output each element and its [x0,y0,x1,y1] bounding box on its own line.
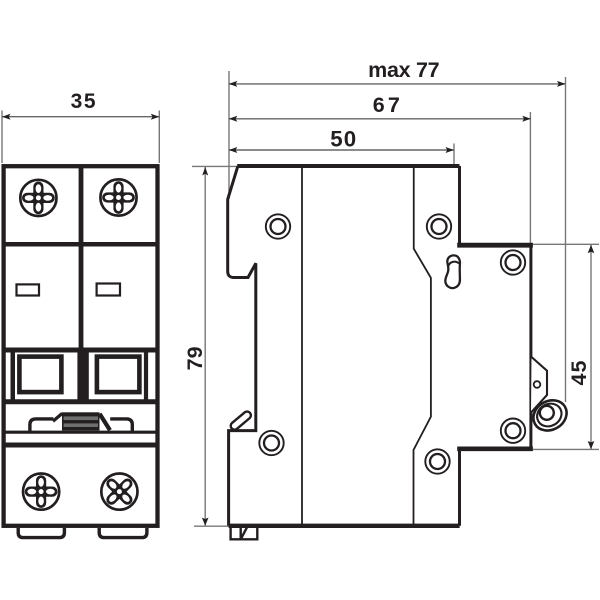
svg-text:max 77: max 77 [368,58,440,82]
svg-text:50: 50 [330,127,356,152]
svg-text:35: 35 [71,90,96,113]
svg-text:79: 79 [183,346,207,370]
svg-text:45: 45 [567,360,591,385]
